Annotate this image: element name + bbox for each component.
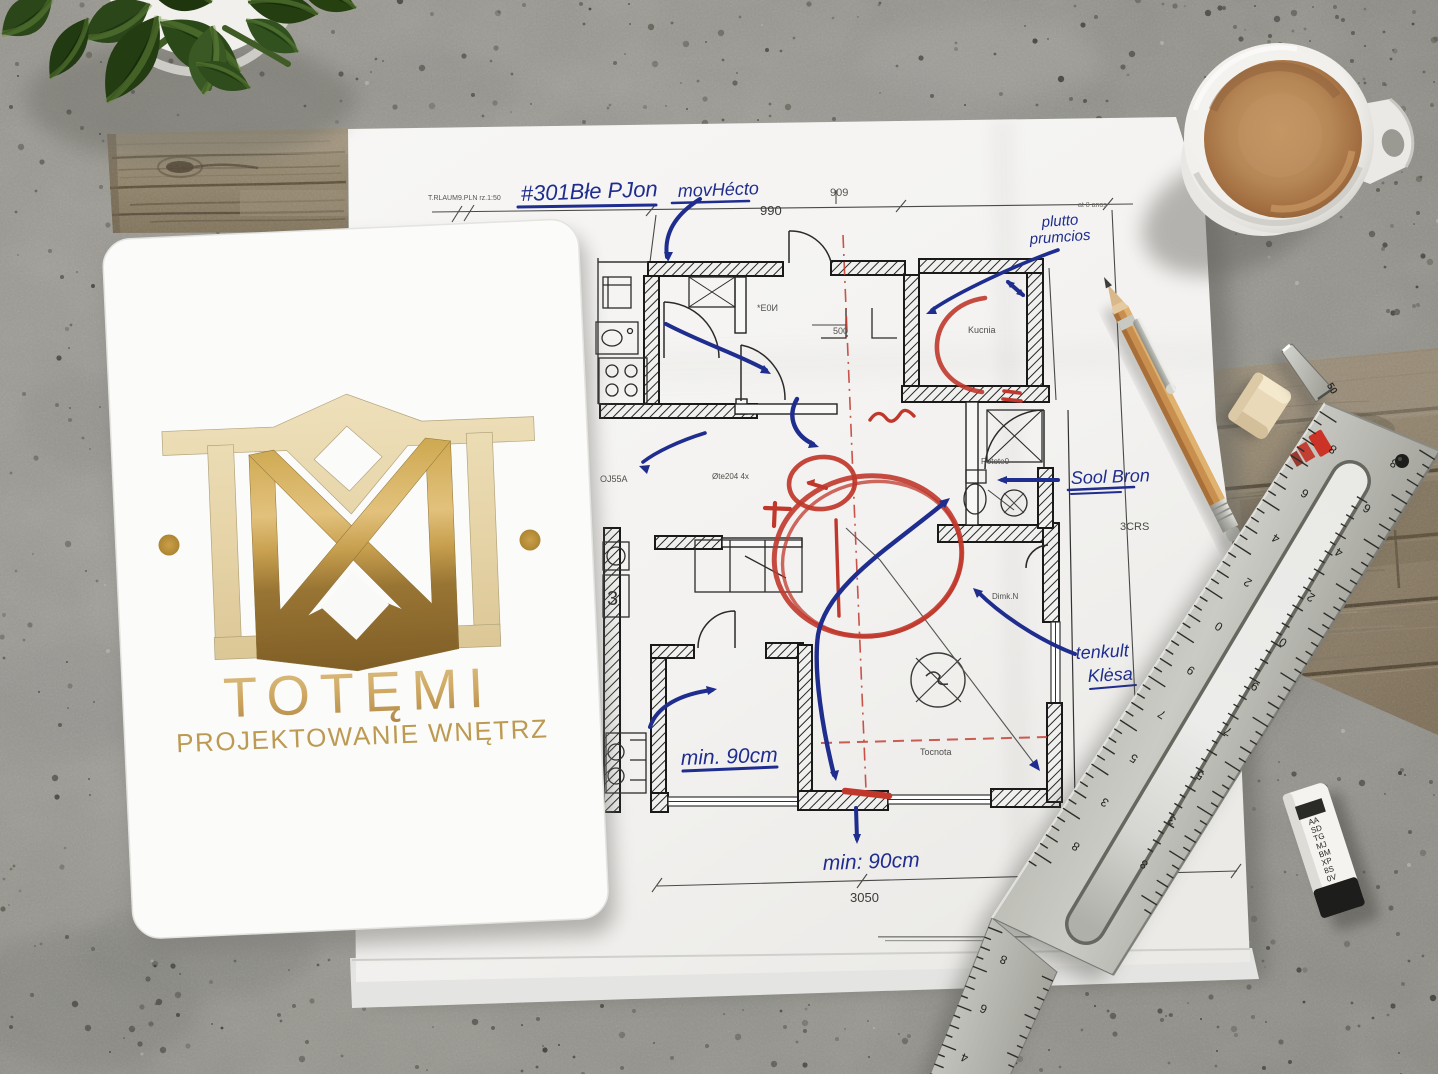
svg-text:3: 3: [607, 588, 618, 610]
svg-text:movHécto: movHécto: [677, 178, 759, 201]
svg-text:#301Błe PJon: #301Błe PJon: [520, 176, 658, 206]
svg-text:OJ55A: OJ55A: [600, 474, 628, 484]
svg-text:3050: 3050: [850, 890, 879, 905]
svg-text:Sool Bron: Sool Bron: [1070, 465, 1150, 488]
svg-text:Øte204 4x: Øte204 4x: [712, 472, 749, 481]
svg-text:Klėsa: Klėsa: [1087, 664, 1133, 686]
svg-text:Dimk.N: Dimk.N: [992, 592, 1018, 601]
svg-text:T.RLAUM9.PLN rz.1:50: T.RLAUM9.PLN rz.1:50: [428, 195, 501, 202]
svg-text:Tocnota: Tocnota: [920, 747, 952, 757]
svg-text:990: 990: [760, 203, 782, 218]
svg-text:3CRS: 3CRS: [1120, 521, 1149, 533]
svg-text:min: 90cm: min: 90cm: [822, 849, 920, 875]
svg-text:at 8 anos: at 8 anos: [1078, 202, 1107, 209]
svg-text:500: 500: [833, 326, 848, 336]
svg-text:Kucnia: Kucnia: [968, 325, 996, 335]
svg-text:909: 909: [830, 187, 848, 199]
svg-text:*E0И: *E0И: [757, 303, 778, 313]
svg-text:min. 90cm: min. 90cm: [680, 744, 778, 770]
svg-text:tenkult: tenkult: [1075, 640, 1130, 663]
svg-text:Rotote0: Rotote0: [981, 457, 1010, 466]
